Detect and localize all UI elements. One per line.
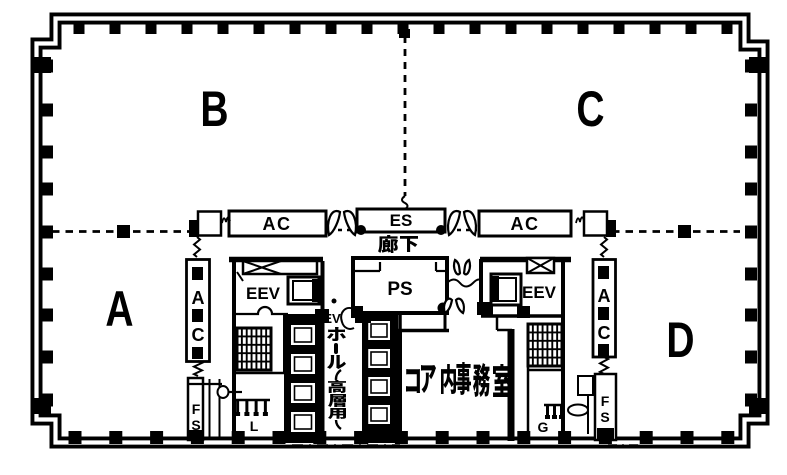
svg-text:EV: EV [323, 311, 341, 326]
svg-text:A: A [598, 286, 611, 306]
svg-text:F: F [601, 393, 610, 409]
svg-text:EEV: EEV [246, 284, 281, 303]
svg-text:C: C [598, 323, 611, 343]
svg-text:B: B [200, 80, 228, 137]
svg-text:C: C [192, 325, 205, 345]
svg-text:A: A [192, 288, 205, 308]
svg-text:AC: AC [263, 214, 292, 234]
svg-text:F: F [192, 401, 201, 417]
svg-text:A: A [105, 280, 133, 337]
svg-text:PS: PS [387, 279, 412, 300]
svg-text:EEV: EEV [522, 283, 557, 302]
svg-text:D: D [666, 311, 694, 368]
svg-text:AC: AC [511, 214, 540, 234]
svg-text:L: L [250, 418, 259, 434]
svg-text:S: S [600, 409, 609, 425]
svg-text:ES: ES [390, 211, 413, 230]
svg-text:G: G [538, 419, 549, 435]
svg-text:C: C [576, 80, 604, 137]
